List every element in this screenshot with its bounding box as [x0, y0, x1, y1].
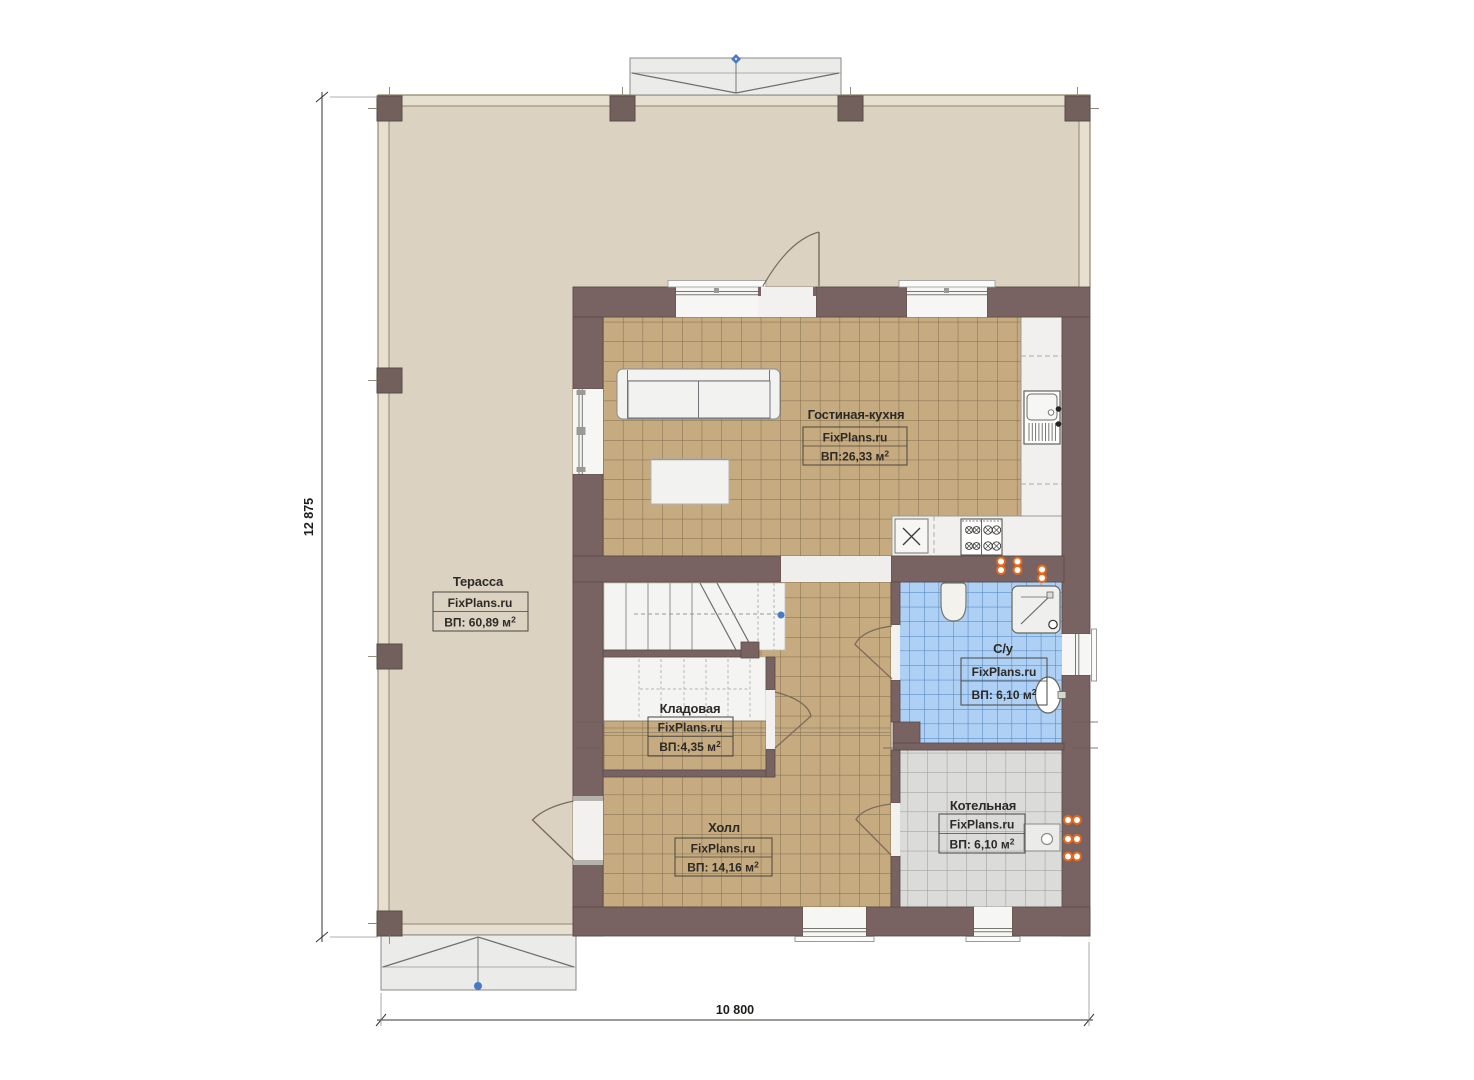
svg-text:Котельная: Котельная	[950, 798, 1016, 813]
svg-text:ВП: 6,10 м2: ВП: 6,10 м2	[950, 837, 1015, 852]
svg-text:ВП: 14,16 м2: ВП: 14,16 м2	[687, 860, 759, 875]
svg-text:ВП:26,33 м2: ВП:26,33 м2	[821, 449, 890, 464]
svg-text:FixPlans.ru: FixPlans.ru	[658, 721, 723, 735]
svg-text:Терасса: Терасса	[453, 574, 504, 589]
svg-text:FixPlans.ru: FixPlans.ru	[950, 818, 1015, 832]
svg-text:FixPlans.ru: FixPlans.ru	[972, 665, 1037, 679]
svg-text:12 875: 12 875	[302, 498, 316, 536]
svg-text:Холл: Холл	[708, 820, 740, 835]
svg-text:ВП: 6,10 м2: ВП: 6,10 м2	[972, 687, 1037, 702]
svg-text:Кладовая: Кладовая	[660, 701, 721, 716]
svg-text:ВП: 60,89 м2: ВП: 60,89 м2	[444, 615, 516, 630]
svg-text:10 800: 10 800	[716, 1003, 754, 1017]
svg-text:FixPlans.ru: FixPlans.ru	[448, 596, 513, 610]
svg-text:FixPlans.ru: FixPlans.ru	[823, 431, 888, 445]
svg-text:Гостиная-кухня: Гостиная-кухня	[808, 407, 905, 422]
svg-text:С/у: С/у	[993, 641, 1014, 656]
svg-text:FixPlans.ru: FixPlans.ru	[691, 842, 756, 856]
svg-text:ВП:4,35 м2: ВП:4,35 м2	[659, 739, 721, 754]
